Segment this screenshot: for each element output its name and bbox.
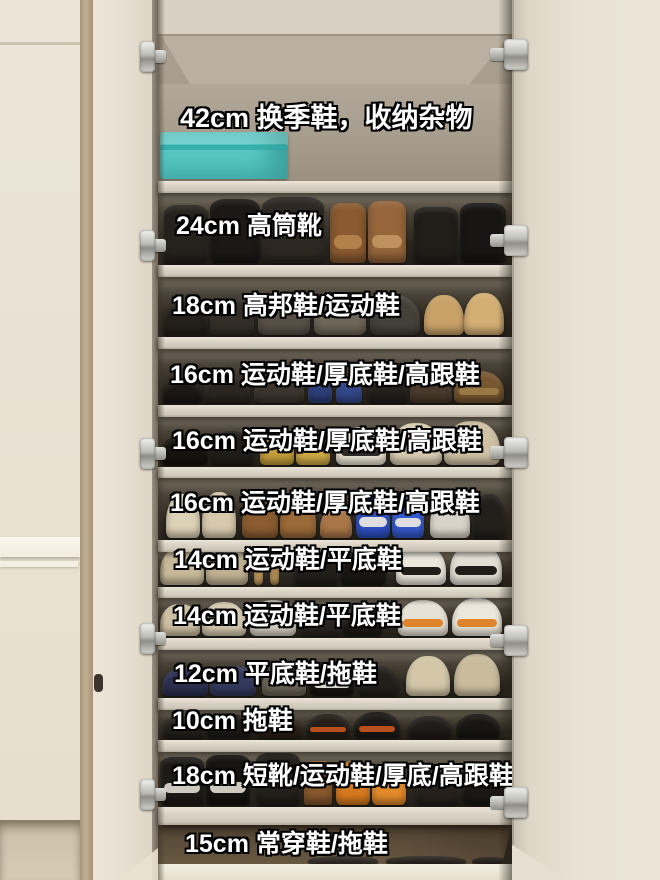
shoe-accent bbox=[160, 145, 288, 150]
door-handle bbox=[94, 674, 103, 692]
shoe bbox=[408, 716, 452, 738]
shelf-board bbox=[158, 337, 512, 349]
shoe-accent bbox=[359, 726, 396, 732]
shoe bbox=[386, 856, 466, 864]
shelf-board bbox=[158, 265, 512, 277]
shelf-label-1: 42cm 换季鞋，收纳杂物 bbox=[180, 103, 473, 134]
hinge-plate bbox=[140, 779, 155, 810]
wall-lower-recess bbox=[0, 820, 80, 880]
shoe-accent bbox=[334, 235, 363, 248]
door-hinge bbox=[140, 778, 166, 812]
wall-ledge bbox=[0, 537, 80, 557]
shelf-board bbox=[158, 181, 512, 193]
shoe bbox=[406, 656, 450, 696]
wall-ledge-trim bbox=[0, 561, 78, 567]
door-hinge bbox=[140, 622, 166, 656]
hinge-plate bbox=[140, 230, 155, 261]
shelf-label-8: 14cm 运动鞋/平底鞋 bbox=[173, 602, 401, 631]
shoe-accent bbox=[310, 727, 345, 732]
cabinet-interior: 42cm 换季鞋，收纳杂物24cm 高筒靴18cm 高邦鞋/运动鞋16cm 运动… bbox=[158, 0, 512, 880]
door-hinge bbox=[490, 436, 530, 470]
shoe bbox=[456, 714, 500, 738]
shelf-label-4: 16cm 运动鞋/厚底鞋/高跟鞋 bbox=[170, 361, 480, 390]
shelf-label-9: 12cm 平底鞋/拖鞋 bbox=[174, 660, 377, 689]
shoe-accent bbox=[395, 518, 421, 528]
shelf-label-11: 18cm 短靴/运动鞋/厚底/高跟鞋 bbox=[172, 762, 514, 791]
shelf-label-3: 18cm 高邦鞋/运动鞋 bbox=[172, 292, 400, 321]
shoe-accent bbox=[403, 619, 443, 627]
shoe-accent bbox=[359, 517, 386, 527]
shoe-cabinet-photo: 42cm 换季鞋，收纳杂物24cm 高筒靴18cm 高邦鞋/运动鞋16cm 运动… bbox=[0, 0, 660, 880]
wall-seam-line bbox=[0, 42, 80, 45]
shoe bbox=[368, 201, 406, 263]
shoe bbox=[306, 714, 350, 738]
floor-threshold-strip bbox=[158, 864, 512, 880]
shelf-label-2: 24cm 高筒靴 bbox=[176, 212, 322, 241]
shoe bbox=[354, 712, 400, 738]
cabinet-top-frame bbox=[158, 0, 512, 36]
left-wall bbox=[0, 0, 80, 880]
shelf-label-12: 15cm 常穿鞋/拖鞋 bbox=[185, 830, 388, 859]
door-hinge bbox=[490, 224, 530, 258]
door-hinge bbox=[490, 38, 530, 72]
shelf-label-7: 14cm 运动鞋/平底鞋 bbox=[174, 546, 402, 575]
shelf-label-5: 16cm 运动鞋/厚底鞋/高跟鞋 bbox=[172, 427, 482, 456]
storage-box bbox=[160, 132, 288, 179]
shelf-board bbox=[158, 807, 512, 825]
right-cabinet-door bbox=[512, 0, 660, 880]
shoe bbox=[398, 600, 448, 636]
shoe bbox=[424, 295, 464, 335]
hinge-plate bbox=[504, 225, 528, 256]
door-hinge bbox=[490, 786, 530, 820]
shoe bbox=[330, 203, 366, 263]
shoe bbox=[454, 654, 500, 696]
wall-corner-trim bbox=[80, 0, 93, 880]
hinge-plate bbox=[140, 41, 155, 72]
door-hinge bbox=[140, 229, 166, 263]
shelf-board bbox=[158, 467, 512, 478]
shoe-accent bbox=[455, 566, 497, 575]
door-hinge bbox=[140, 437, 166, 471]
hinge-plate bbox=[504, 39, 528, 70]
shelf-board bbox=[158, 587, 512, 598]
door-hinge bbox=[490, 624, 530, 658]
hinge-plate bbox=[140, 438, 155, 469]
hinge-plate bbox=[504, 625, 528, 656]
shoe bbox=[414, 207, 458, 263]
shelf-board bbox=[158, 740, 512, 752]
door-hinge bbox=[140, 40, 166, 74]
shelf-board bbox=[158, 638, 512, 650]
shoe-accent bbox=[372, 235, 402, 249]
shelf-label-6: 16cm 运动鞋/厚底鞋/高跟鞋 bbox=[170, 489, 480, 518]
shelf-board bbox=[158, 405, 512, 417]
hinge-plate bbox=[504, 437, 528, 468]
hinge-plate bbox=[504, 787, 528, 818]
shoe-accent bbox=[401, 567, 441, 576]
shelf-label-10: 10cm 拖鞋 bbox=[172, 707, 293, 736]
hinge-plate bbox=[140, 623, 155, 654]
cabinet-ceiling bbox=[158, 36, 512, 84]
